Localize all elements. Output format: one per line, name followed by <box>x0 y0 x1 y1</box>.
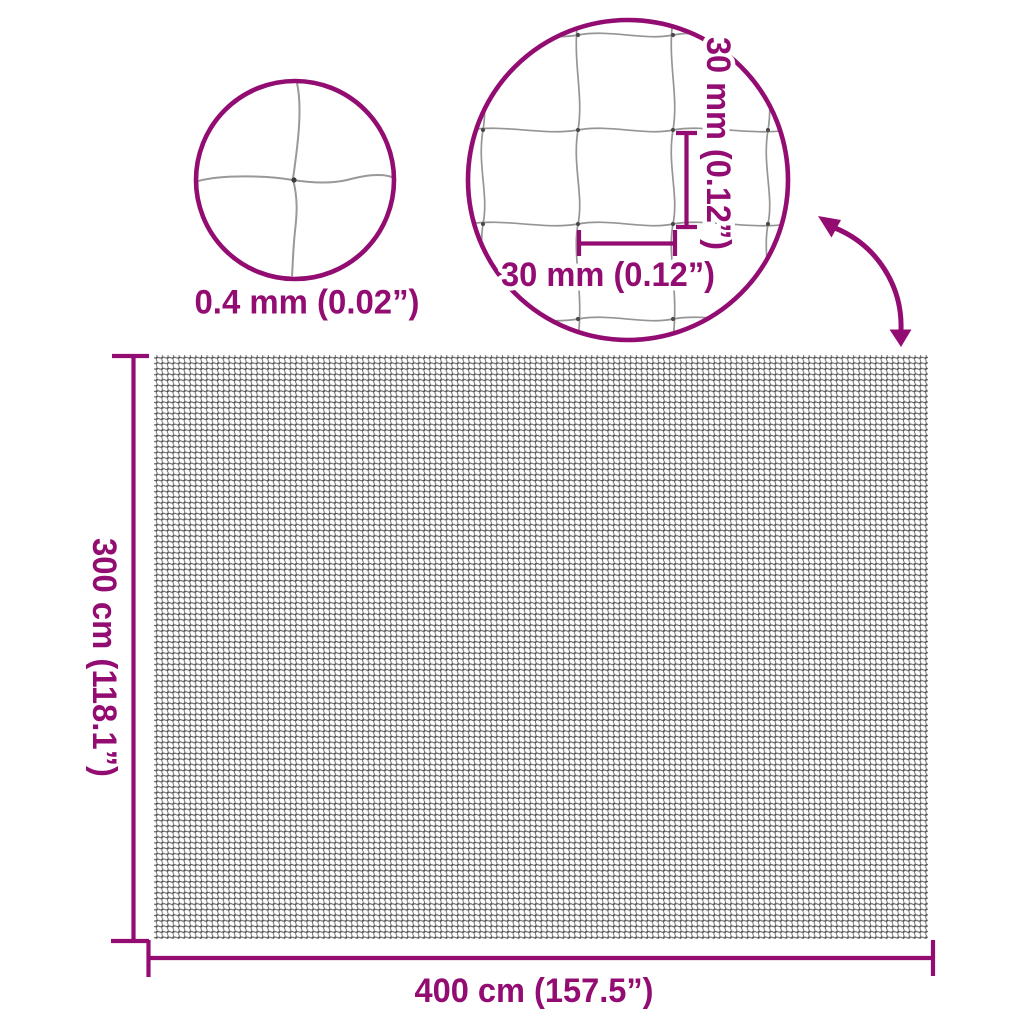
svg-text:300 cm (118.1”): 300 cm (118.1”) <box>85 538 123 777</box>
svg-text:30 mm (0.12”): 30 mm (0.12”) <box>501 256 715 294</box>
svg-text:400 cm (157.5”): 400 cm (157.5”) <box>415 972 654 1010</box>
svg-text:0.4 mm (0.02”): 0.4 mm (0.02”) <box>195 284 420 322</box>
svg-text:30 mm (0.12”): 30 mm (0.12”) <box>699 37 737 250</box>
